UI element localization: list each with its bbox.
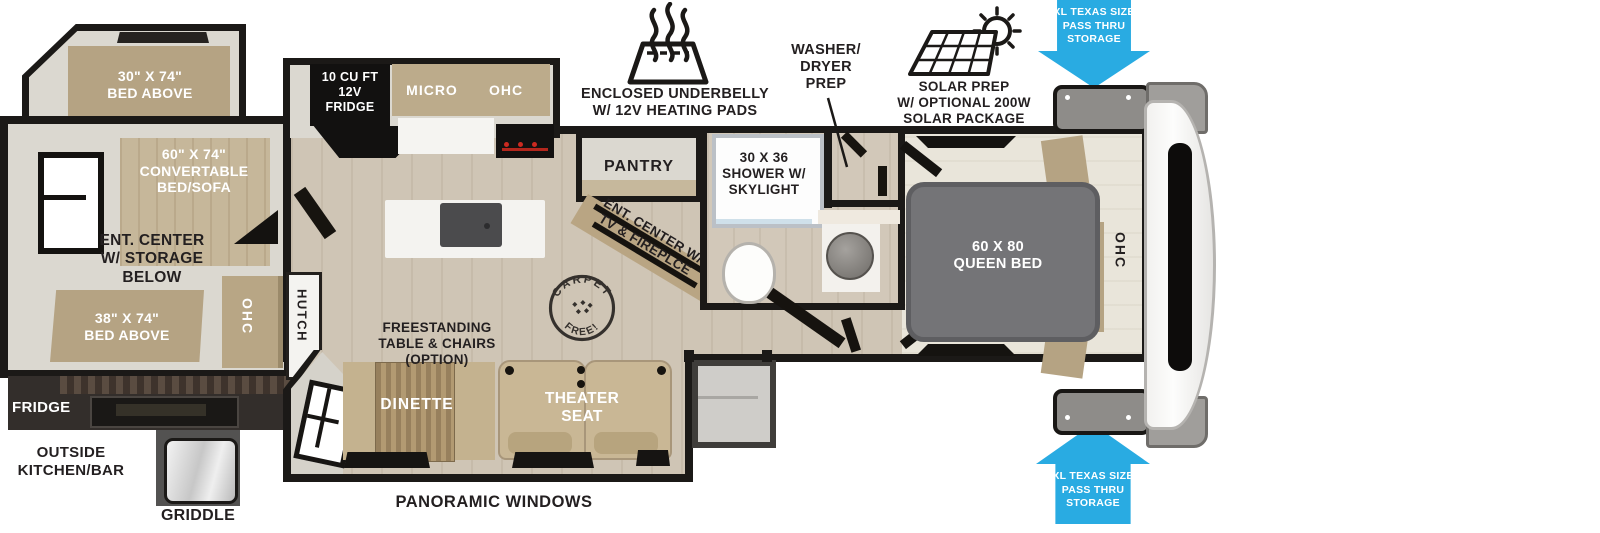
door-jamb-right: [762, 350, 772, 362]
door-jamb-left: [684, 350, 694, 362]
slide-window-3: [636, 450, 670, 466]
pass-thru-arrow-bottom: XL TEXAS SIZE PASS THRU STORAGE: [1036, 424, 1150, 524]
pantry-label: PANTRY: [582, 158, 696, 177]
washer-dryer-closet-door2: [878, 166, 887, 196]
outside-fridge-label: FRIDGE: [10, 399, 92, 417]
queen-bed: 60 X 80 QUEEN BED: [906, 182, 1100, 342]
slide-window-2: [512, 452, 594, 468]
sink-basin: [826, 232, 874, 280]
pass-thru-door-top: [1053, 85, 1151, 133]
ent-center-storage-label: ENT. CENTER W/ STORAGE BELOW: [58, 232, 246, 287]
freestanding-table-label: FREESTANDING TABLE & CHAIRS (OPTION): [366, 320, 508, 368]
carpet-free-stamp: CARPET FREE!: [546, 272, 618, 344]
solar-icon: [900, 4, 1032, 82]
bed-38x74-label: 38" X 74" BED ABOVE: [52, 310, 202, 343]
entry-steps: [692, 360, 776, 448]
hutch-label: HUTCH: [294, 289, 309, 342]
underbelly-label: ENCLOSED UNDERBELLY W/ 12V HEATING PADS: [553, 86, 797, 120]
cupholder: [577, 366, 585, 374]
bath-partition-horz: [824, 200, 905, 207]
griddle-label: GRIDDLE: [146, 507, 250, 526]
front-cap-window: [1168, 143, 1192, 371]
nightstand-top: [1041, 135, 1089, 188]
shower: 30 X 36 SHOWER W/ SKYLIGHT: [712, 134, 824, 228]
heating-pads-icon: [612, 2, 724, 88]
bathroom-sink-counter: [818, 210, 900, 224]
cupholder-2: [577, 380, 585, 388]
wardrobe-mark-top: [916, 136, 1016, 148]
ohc-kitchen-label: OHC: [474, 82, 538, 99]
bathroom-sink: [822, 224, 880, 292]
theater-seat-label: THEATER SEAT: [528, 390, 636, 427]
slide-window-1: [344, 452, 430, 468]
outside-fridge: [90, 396, 239, 428]
pass-thru-door-bottom: [1053, 389, 1151, 435]
ohc-bedroom-label: OHC: [1112, 232, 1129, 269]
micro-label: MICRO: [396, 82, 468, 99]
stove: [496, 124, 554, 158]
wardrobe-mark-bottom: [916, 344, 1016, 356]
pass-thru-arrow-top: XL TEXAS SIZE PASS THRU STORAGE: [1038, 0, 1150, 88]
fridge-12v-label: 10 CU FT 12V FRIDGE: [308, 70, 392, 114]
kitchen-counter: [398, 118, 494, 154]
seat-bolt-right: [657, 366, 666, 375]
stamp-texture: [572, 300, 592, 314]
queen-bed-label: 60 X 80 QUEEN BED: [911, 239, 1085, 273]
bed-60x74-label: 60" X 74" CONVERTABLE BED/SOFA: [115, 146, 273, 196]
dinette-label: DINETTE: [352, 396, 482, 414]
pass-thru-top-label: XL TEXAS SIZE PASS THRU STORAGE: [1038, 6, 1150, 47]
floorplan: ENCLOSED UNDERBELLY W/ 12V HEATING PADS …: [0, 0, 1600, 533]
pass-thru-bottom-label: XL TEXAS SIZE PASS THRU STORAGE: [1036, 470, 1150, 511]
ohc-cabinet-bunk: OHC: [222, 276, 283, 368]
solar-label: SOLAR PREP W/ OPTIONAL 200W SOLAR PACKAG…: [876, 79, 1052, 127]
bath-partition-vert: [824, 126, 832, 208]
ohc-bunk-label: OHC: [239, 298, 256, 335]
shower-label: 30 X 36 SHOWER W/ SKYLIGHT: [716, 150, 812, 198]
washer-dryer-label: WASHER/ DRYER PREP: [773, 42, 879, 93]
outside-kitchen-label: OUTSIDE KITCHEN/BAR: [0, 444, 142, 479]
panoramic-windows-label: PANORAMIC WINDOWS: [388, 493, 600, 512]
griddle: [164, 438, 238, 504]
roof-vent: [117, 32, 209, 43]
bed-30x74-label: 30" X 74" BED ABOVE: [70, 68, 230, 101]
island-sink: [440, 203, 502, 247]
